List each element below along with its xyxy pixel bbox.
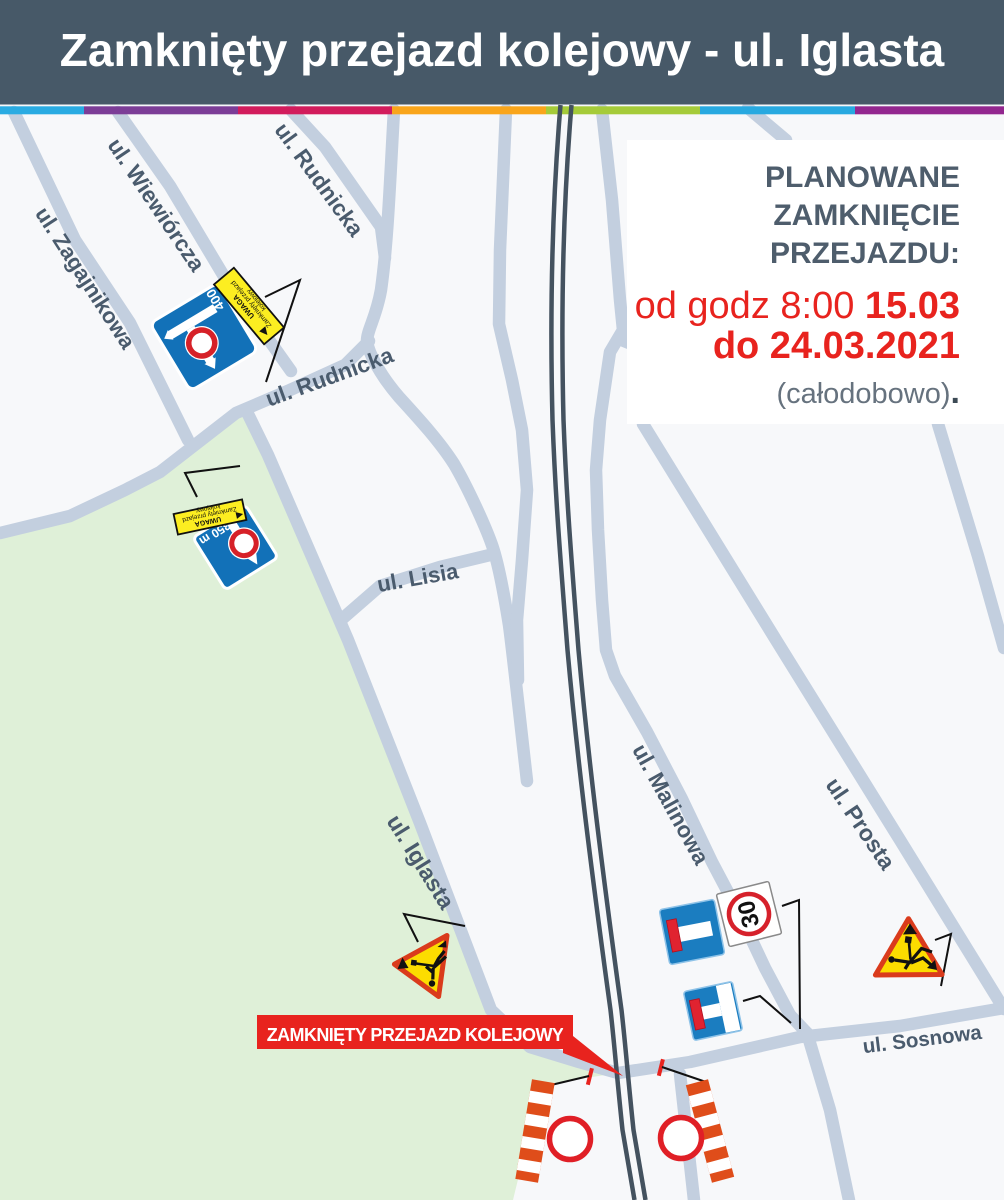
svg-text:ZAMKNIĘCIE: ZAMKNIĘCIE (773, 199, 960, 232)
svg-text:ZAMKNIĘTY PRZEJAZD KOLEJOWY: ZAMKNIĘTY PRZEJAZD KOLEJOWY (267, 1025, 564, 1045)
svg-text:PLANOWANE: PLANOWANE (765, 161, 960, 194)
svg-text:od godz 8:00 15.03: od godz 8:00 15.03 (635, 285, 960, 327)
svg-text:Zamknięty przejazd kolejowy -: Zamknięty przejazd kolejowy - ul. Iglast… (60, 24, 945, 76)
svg-text:(całodobowo).: (całodobowo). (776, 373, 960, 411)
svg-text:PRZEJAZDU:: PRZEJAZDU: (770, 237, 960, 270)
svg-text:do 24.03.2021: do 24.03.2021 (713, 325, 960, 367)
